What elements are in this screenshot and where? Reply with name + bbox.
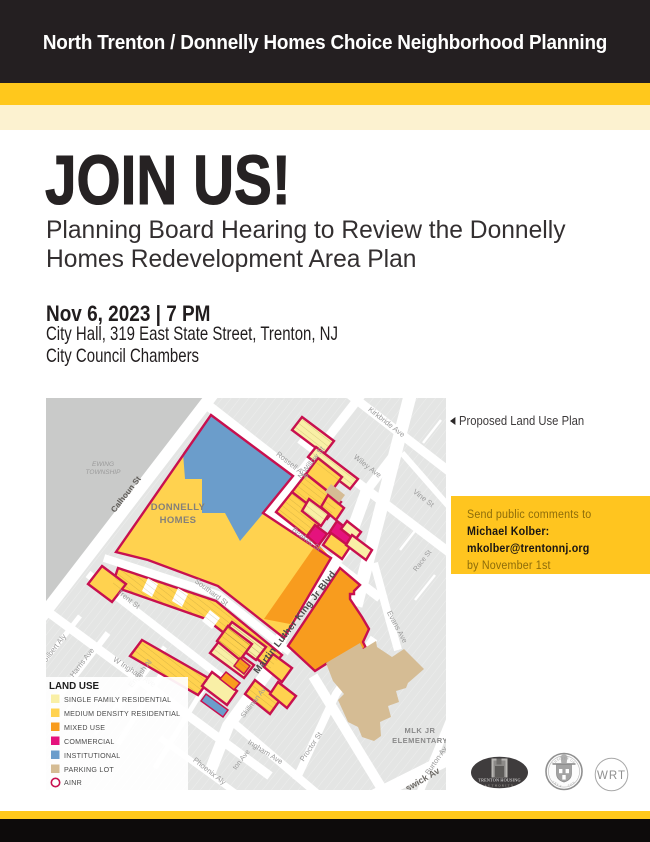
svg-text:HOMES: HOMES [160, 515, 197, 526]
svg-text:INSTITUTIONAL: INSTITUTIONAL [64, 752, 120, 760]
svg-text:AINR: AINR [64, 779, 82, 787]
svg-text:TRENTON HOUSING: TRENTON HOUSING [478, 778, 520, 783]
svg-text:PARKING LOT: PARKING LOT [64, 766, 114, 774]
svg-text:WRT: WRT [597, 770, 626, 782]
svg-text:MEDIUM DENSITY RESIDENTIAL: MEDIUM DENSITY RESIDENTIAL [64, 710, 180, 718]
svg-text:EWING: EWING [92, 461, 114, 468]
svg-text:ELEMENTARY: ELEMENTARY [392, 736, 446, 745]
svg-text:COMMERCIAL: COMMERCIAL [64, 738, 115, 746]
svg-text:C I T Y: C I T Y [559, 757, 570, 761]
svg-text:DONNELLY: DONNELLY [151, 502, 206, 513]
svg-text:LAND USE: LAND USE [49, 681, 100, 692]
svg-text:AUTHORITY: AUTHORITY [484, 784, 514, 788]
svg-text:MLK JR: MLK JR [405, 726, 436, 735]
svg-text:MIXED USE: MIXED USE [64, 724, 105, 732]
svg-text:SINGLE FAMILY RESIDENTIAL: SINGLE FAMILY RESIDENTIAL [64, 696, 171, 704]
svg-text:TOWNSHIP: TOWNSHIP [86, 469, 122, 476]
